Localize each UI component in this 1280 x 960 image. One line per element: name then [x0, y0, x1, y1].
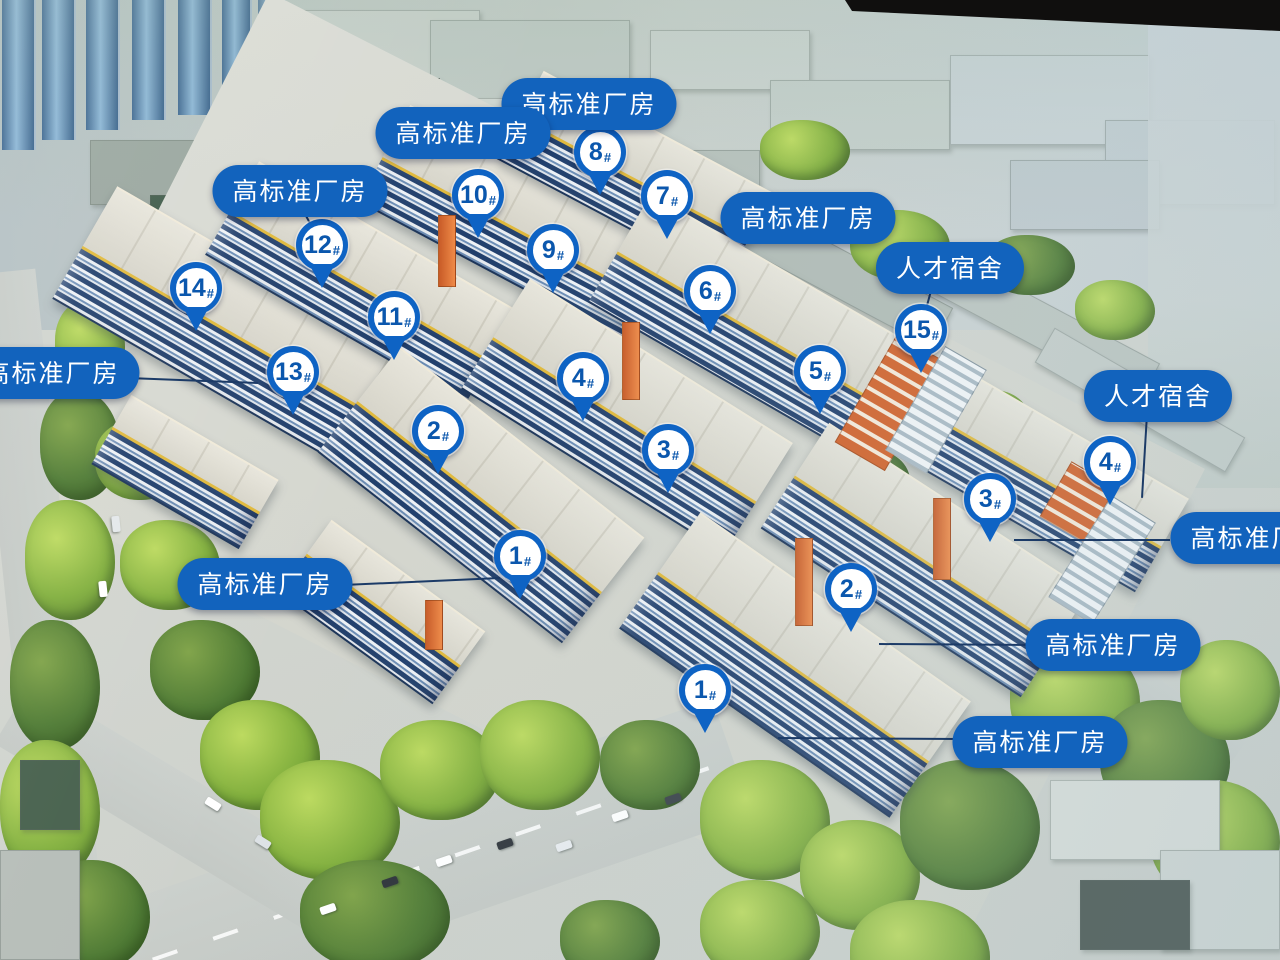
label-dormitory-right: 人才宿舍: [1084, 370, 1232, 422]
pin-number: 12: [304, 233, 332, 258]
pin-number-suffix: #: [855, 588, 862, 601]
aerial-site-rendering: 高标准厂房高标准厂房高标准厂房高标准厂房人才宿舍人才宿舍高标准厂房高标准厂房高标…: [0, 0, 1280, 960]
pin-7: 7#: [640, 170, 694, 244]
pin-head: 11#: [368, 291, 420, 343]
label-factory-right-3: 高标准厂房: [1170, 512, 1280, 564]
label-factory-1: 高标准厂房: [177, 558, 352, 610]
pin-5: 5#: [793, 345, 847, 419]
label-factory-7: 高标准厂房: [720, 192, 895, 244]
pin-number: 11: [377, 305, 403, 330]
pin-head: 2#: [825, 563, 877, 615]
pin-number-suffix: #: [404, 316, 411, 329]
pin-number: 3: [979, 487, 993, 512]
pin-head: 5#: [794, 345, 846, 397]
pin-number-suffix: #: [304, 371, 311, 384]
pin-number: 14: [178, 276, 206, 301]
pin-3-right: 3#: [963, 473, 1017, 547]
label-factory-10: 高标准厂房: [375, 107, 550, 159]
pin-head: 1#: [494, 530, 546, 582]
pin-head: 10#: [452, 169, 504, 221]
leader-line: [128, 377, 258, 384]
pin-number-disc: 6#: [690, 271, 731, 312]
pin-number-suffix: #: [714, 290, 721, 303]
pin-number: 4: [1099, 450, 1113, 475]
pin-number-disc: 2#: [831, 569, 872, 610]
pin-head: 2#: [412, 405, 464, 457]
pin-number: 7: [656, 184, 670, 209]
pin-number-disc: 11#: [374, 297, 415, 338]
pin-number: 4: [572, 366, 586, 391]
pin-10: 10#: [451, 169, 505, 243]
pin-number-suffix: #: [824, 370, 831, 383]
pin-14: 14#: [169, 262, 223, 336]
pin-head: 4#: [557, 352, 609, 404]
pin-number: 15: [903, 318, 931, 343]
pin-head: 4#: [1084, 436, 1136, 488]
pin-1-right: 1#: [678, 664, 732, 738]
pin-head: 1#: [679, 664, 731, 716]
pin-number: 10: [460, 183, 488, 208]
pin-number: 3: [657, 438, 671, 463]
pin-head: 3#: [964, 473, 1016, 525]
pin-13: 13#: [266, 346, 320, 420]
pin-number-disc: 15#: [901, 310, 942, 351]
pin-number-disc: 10#: [458, 175, 499, 216]
label-dormitory-15: 人才宿舍: [876, 242, 1024, 294]
pin-1: 1#: [493, 530, 547, 604]
pin-number-suffix: #: [932, 329, 939, 342]
pin-number: 8: [589, 140, 603, 165]
leader-line: [879, 643, 1040, 646]
pin-number-disc: 12#: [302, 225, 343, 266]
leader-line: [778, 737, 961, 740]
pin-number-disc: 14#: [176, 268, 217, 309]
pin-number-disc: 9#: [533, 230, 574, 271]
pin-8: 8#: [573, 126, 627, 200]
pin-number-suffix: #: [524, 555, 531, 568]
pin-number-disc: 3#: [648, 430, 689, 471]
pin-number-disc: 1#: [685, 670, 726, 711]
pin-head: 3#: [642, 424, 694, 476]
pin-number-suffix: #: [671, 195, 678, 208]
pin-head: 15#: [895, 304, 947, 356]
pin-number: 9: [542, 238, 556, 263]
pin-number: 1: [509, 544, 523, 569]
annotation-layer: 高标准厂房高标准厂房高标准厂房高标准厂房人才宿舍人才宿舍高标准厂房高标准厂房高标…: [0, 0, 1280, 960]
pin-number-suffix: #: [1114, 461, 1121, 474]
pin-2: 2#: [411, 405, 465, 479]
pin-12: 12#: [295, 219, 349, 293]
pin-number-disc: 5#: [800, 351, 841, 392]
pin-11: 11#: [367, 291, 421, 365]
pin-2-right: 2#: [824, 563, 878, 637]
label-factory-right-1: 高标准厂房: [952, 716, 1127, 768]
pin-number-suffix: #: [709, 689, 716, 702]
leader-line: [1014, 539, 1170, 541]
pin-head: 13#: [267, 346, 319, 398]
pin-head: 14#: [170, 262, 222, 314]
pin-4-right: 4#: [1083, 436, 1137, 510]
pin-number-disc: 8#: [580, 132, 621, 173]
pin-number-disc: 7#: [647, 176, 688, 217]
pin-number-suffix: #: [489, 194, 496, 207]
label-factory-12: 高标准厂房: [212, 165, 387, 217]
pin-number-suffix: #: [557, 249, 564, 262]
pin-number-suffix: #: [442, 430, 449, 443]
pin-9: 9#: [526, 224, 580, 298]
pin-number-suffix: #: [587, 377, 594, 390]
pin-number-disc: 1#: [500, 536, 541, 577]
pin-number-disc: 4#: [1090, 442, 1131, 483]
pin-number-suffix: #: [672, 449, 679, 462]
pin-15: 15#: [894, 304, 948, 378]
label-factory-right-2: 高标准厂房: [1025, 619, 1200, 671]
pin-6: 6#: [683, 265, 737, 339]
pin-number-disc: 2#: [418, 411, 459, 452]
pin-number-suffix: #: [333, 244, 340, 257]
pin-head: 7#: [641, 170, 693, 222]
pin-head: 8#: [574, 126, 626, 178]
pin-number: 2: [427, 419, 441, 444]
pin-number: 13: [275, 360, 303, 385]
leader-line: [1141, 414, 1148, 498]
pin-head: 12#: [296, 219, 348, 271]
pin-number: 2: [840, 577, 854, 602]
pin-number-disc: 3#: [970, 479, 1011, 520]
pin-number: 1: [694, 678, 708, 703]
pin-number-suffix: #: [207, 287, 214, 300]
pin-4: 4#: [556, 352, 610, 426]
pin-3: 3#: [641, 424, 695, 498]
pin-number-suffix: #: [604, 151, 611, 164]
label-factory-left: 高标准厂房: [0, 347, 140, 399]
pin-head: 6#: [684, 265, 736, 317]
pin-head: 9#: [527, 224, 579, 276]
pin-number: 6: [699, 279, 713, 304]
pin-number-disc: 4#: [563, 358, 604, 399]
pin-number-suffix: #: [994, 498, 1001, 511]
pin-number: 5: [809, 359, 823, 384]
pin-number-disc: 13#: [273, 352, 314, 393]
